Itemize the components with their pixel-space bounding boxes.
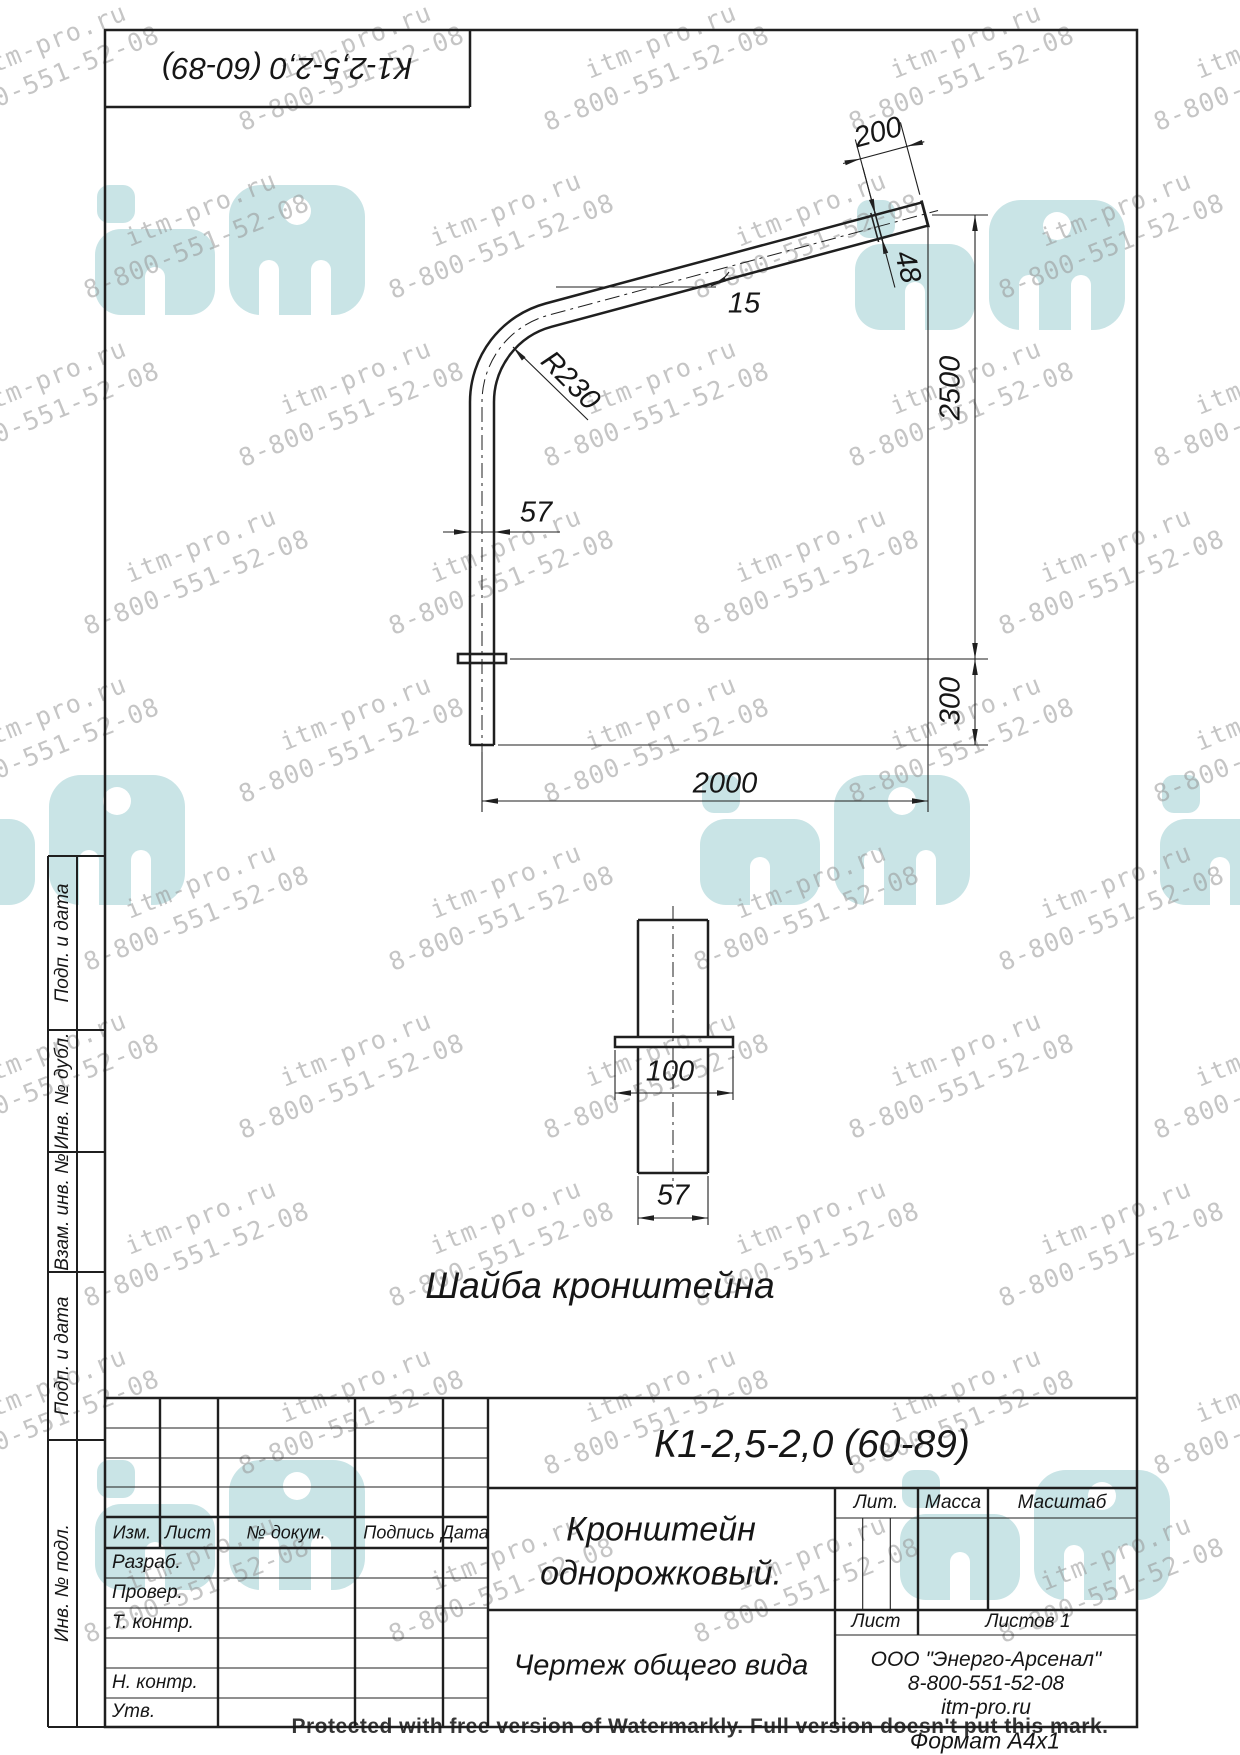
titleblock-header-date: Дата [441, 1523, 489, 1544]
titleblock-name-line1: Кронштейн [566, 1511, 756, 1550]
titleblock-scale-label: Масштаб [1018, 1492, 1107, 1514]
titleblock-header-izm: Изм. [113, 1523, 151, 1544]
strip-label-podp-1: Подп. и дата [52, 884, 74, 1003]
titleblock-row-razrab: Разраб. [112, 1552, 181, 1574]
watermarkly-protected-text: Protected with free version of Watermark… [291, 1715, 1108, 1739]
main-view-outline [458, 201, 929, 746]
titleblock-name-line2: однорожковый. [540, 1555, 782, 1594]
titleblock-row-tkontr: Т. контр. [112, 1612, 194, 1634]
dimension-lines [443, 122, 988, 1225]
strip-label-inv-podl: Инв. № подл. [52, 1524, 74, 1642]
dim-washer-plate: 100 [646, 1056, 694, 1089]
titleblock-lit-label: Лит. [854, 1492, 899, 1514]
strip-label-podp-2: Подп. и дата [52, 1297, 74, 1416]
titleblock-row-utv: Утв. [112, 1701, 155, 1723]
drawing-sheet: itm-pro.ru8-800-551-52-08itm-pro.ru8-800… [0, 0, 1240, 1755]
titleblock-doc-type: Чертеж общего вида [514, 1650, 809, 1683]
sheet-frame [105, 30, 1137, 1727]
titleblock-company-name: ООО "Энерго-Арсенал" [871, 1648, 1102, 1672]
dim-post-diameter: 57 [520, 497, 552, 530]
titleblock-header-list: Лист [165, 1523, 211, 1544]
dim-embed-length: 300 [935, 677, 968, 725]
corner-stamp-designation: К1-2,5-2,0 (60-89) [162, 50, 413, 86]
washer-view-title: Шайба кронштейна [425, 1265, 775, 1307]
titleblock-header-sign: Подпись [363, 1523, 434, 1544]
dim-washer-tube: 57 [657, 1180, 689, 1213]
dim-reach: 2000 [693, 768, 758, 801]
strip-label-inv-dubl: Инв. № дубл. [52, 1033, 74, 1150]
titleblock-row-prover: Провер. [112, 1582, 183, 1604]
titleblock-mass-label: Масса [925, 1492, 981, 1514]
titleblock-header-doc: № докум. [246, 1523, 325, 1544]
strip-label-vzam-inv: Взам. инв. № [52, 1153, 74, 1271]
titleblock-row-nkontr: Н. контр. [112, 1672, 198, 1694]
titleblock-sheets-label: Листов 1 [985, 1611, 1070, 1633]
dim-height: 2500 [935, 356, 968, 421]
dimension-arrows [454, 140, 978, 1221]
titleblock-company-phone: 8-800-551-52-08 [908, 1672, 1064, 1696]
dim-angle: 15 [728, 288, 760, 321]
washer-view-outline [615, 920, 733, 1173]
titleblock-designation: К1-2,5-2,0 (60-89) [654, 1423, 970, 1467]
titleblock-sheet-label: Лист [852, 1611, 901, 1633]
